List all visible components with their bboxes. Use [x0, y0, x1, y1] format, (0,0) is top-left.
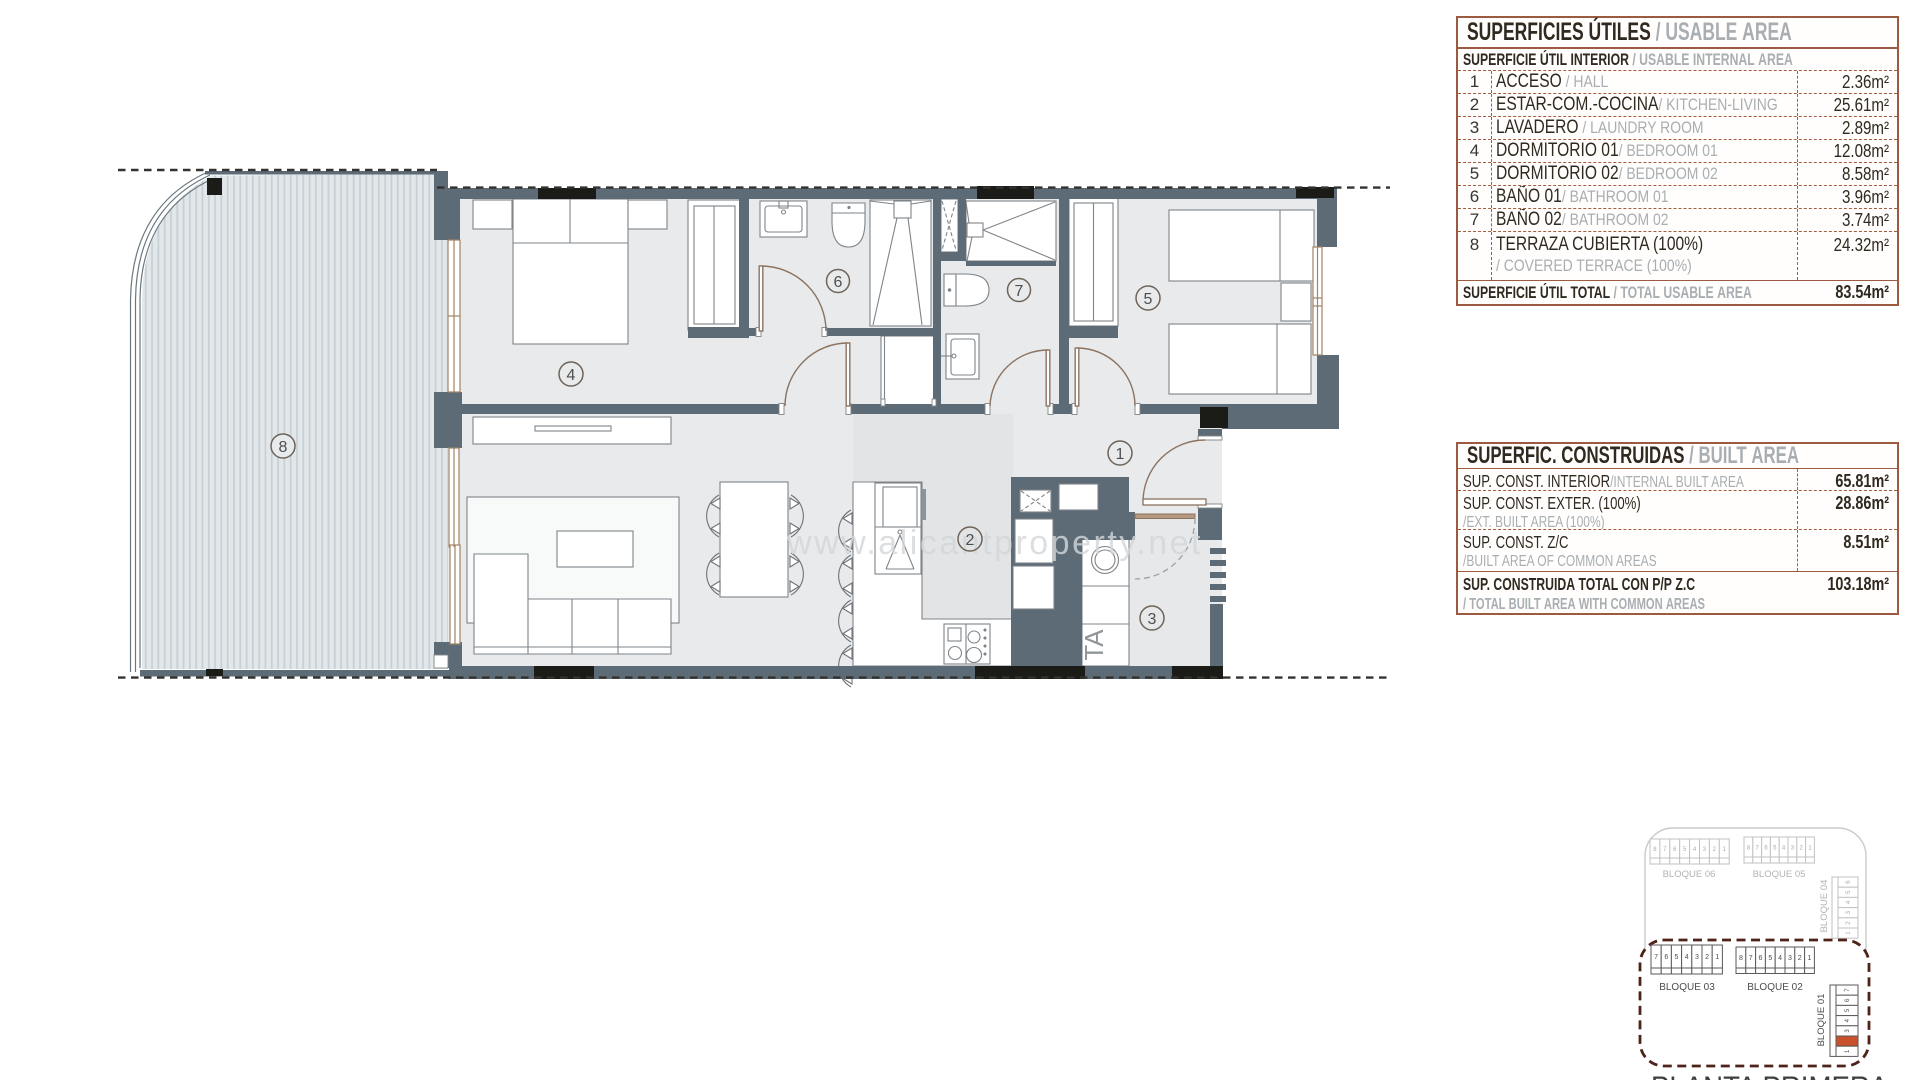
svg-text:2: 2 — [1705, 954, 1709, 961]
svg-text:7: 7 — [1015, 283, 1024, 300]
svg-text:2: 2 — [966, 532, 975, 549]
svg-text:BLOQUE 05: BLOQUE 05 — [1753, 869, 1806, 880]
svg-text:3: 3 — [1148, 611, 1157, 628]
svg-text:BLOQUE 01: BLOQUE 01 — [1816, 994, 1827, 1047]
svg-text:5: 5 — [1768, 955, 1772, 962]
svg-text:www.alicantproperty.net: www.alicantproperty.net — [786, 524, 1203, 562]
svg-text:7: 7 — [1654, 954, 1658, 961]
svg-text:BLOQUE 04: BLOQUE 04 — [1819, 880, 1830, 933]
svg-text:4: 4 — [567, 367, 576, 384]
svg-text:2: 2 — [1798, 955, 1802, 962]
svg-text:BLOQUE 02: BLOQUE 02 — [1747, 982, 1803, 993]
svg-text:8: 8 — [1739, 955, 1743, 962]
svg-text:TA: TA — [1079, 629, 1109, 661]
svg-text:1: 1 — [1808, 955, 1812, 962]
svg-text:1: 1 — [1116, 446, 1125, 463]
svg-text:5: 5 — [1144, 291, 1153, 308]
svg-text:6: 6 — [1759, 955, 1763, 962]
svg-text:3: 3 — [1788, 955, 1792, 962]
svg-text:BLOQUE 06: BLOQUE 06 — [1663, 869, 1716, 880]
svg-text:BLOQUE 03: BLOQUE 03 — [1659, 982, 1715, 993]
svg-text:8: 8 — [279, 439, 288, 456]
svg-text:4: 4 — [1685, 954, 1689, 961]
svg-text:6: 6 — [1664, 954, 1668, 961]
svg-text:6: 6 — [834, 274, 843, 291]
svg-text:5: 5 — [1675, 954, 1679, 961]
svg-text:7: 7 — [1749, 955, 1753, 962]
svg-text:4: 4 — [1778, 955, 1782, 962]
svg-text:3: 3 — [1695, 954, 1699, 961]
svg-text:1: 1 — [1715, 954, 1719, 961]
